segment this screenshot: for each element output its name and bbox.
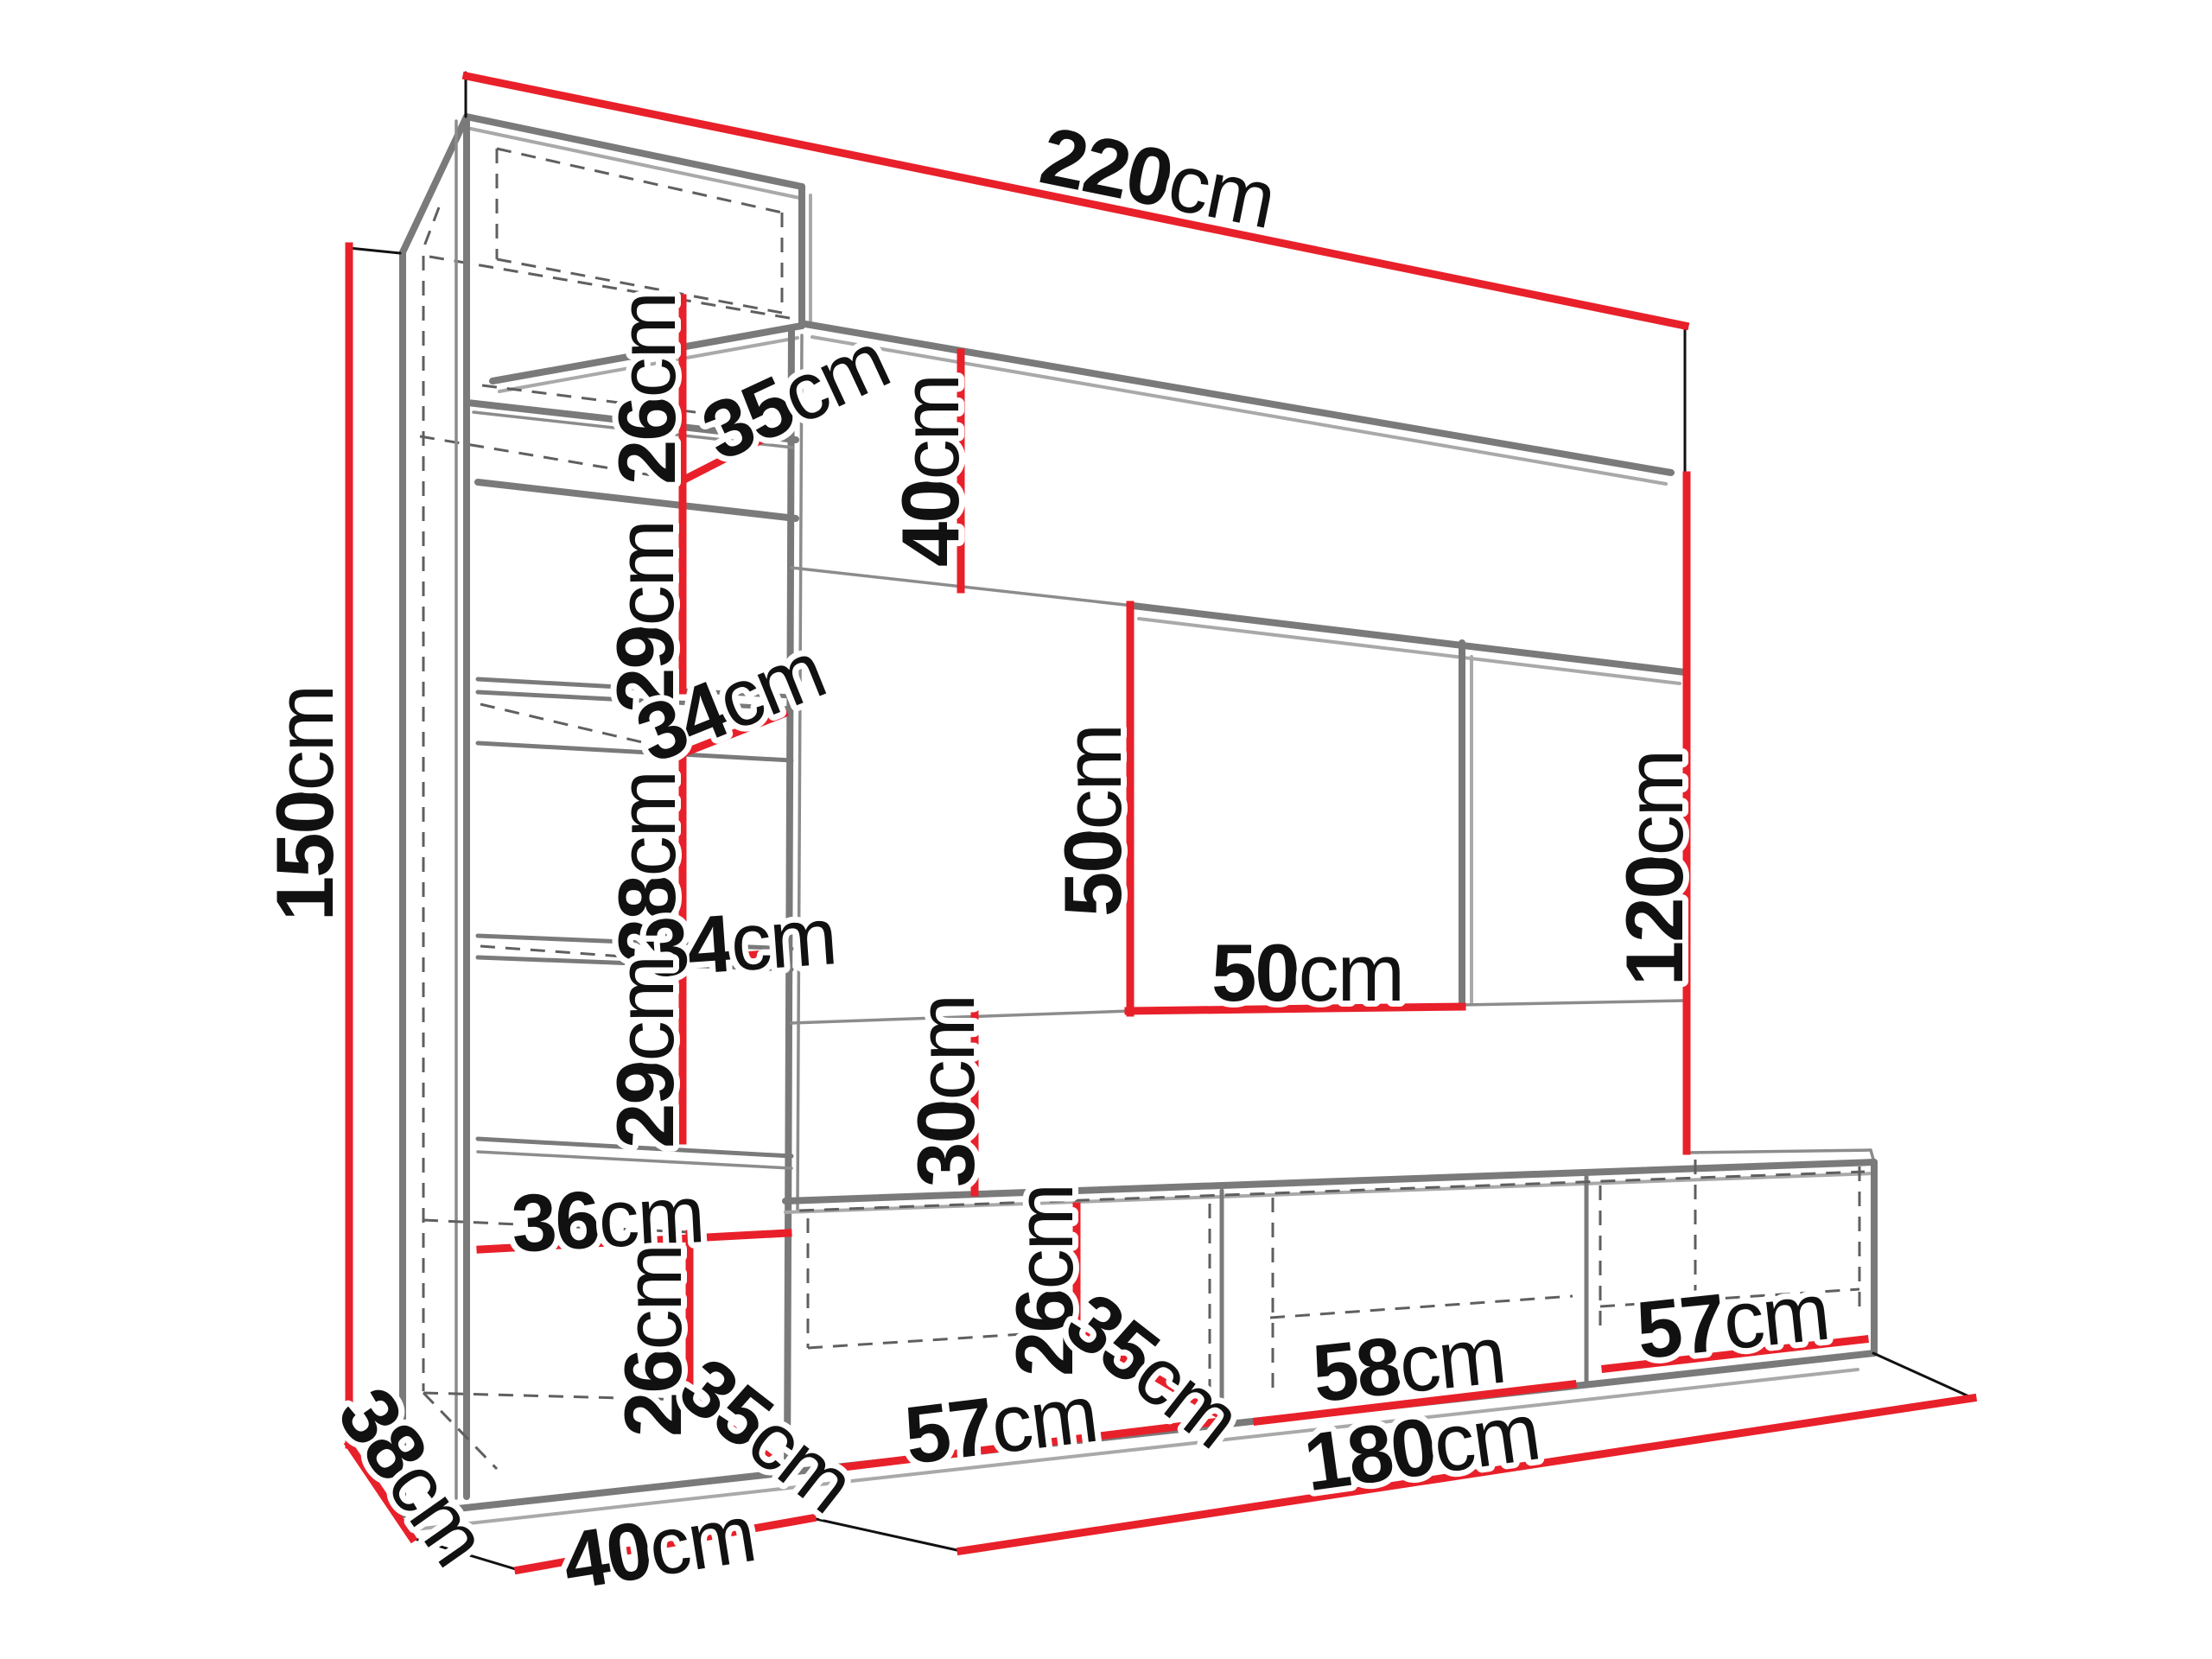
dim-label-top-cabinet-height: 26cm bbox=[601, 293, 692, 485]
svg-text:40cm: 40cm bbox=[556, 1487, 760, 1606]
dim-label-height-right: 120cm bbox=[1609, 751, 1700, 986]
page: 220cm 150cm 26cm 35cm 40cm 29cm 34cm 28c… bbox=[0, 0, 2212, 1659]
svg-text:29cm: 29cm bbox=[600, 957, 690, 1148]
svg-text:26cm: 26cm bbox=[601, 293, 692, 485]
dim-label-width-overall: 220cm bbox=[1033, 110, 1282, 245]
dimension-diagram: 220cm 150cm 26cm 35cm 40cm 29cm 34cm 28c… bbox=[0, 0, 2212, 1659]
svg-text:57cm: 57cm bbox=[900, 1368, 1102, 1481]
svg-text:50cm: 50cm bbox=[1211, 927, 1403, 1018]
svg-text:50cm: 50cm bbox=[1047, 725, 1138, 917]
dim-label-base-front-depth: 40cm bbox=[556, 1487, 760, 1606]
dim-label-niche-width: 50cm bbox=[1211, 927, 1403, 1018]
svg-text:150cm: 150cm bbox=[259, 686, 350, 921]
svg-text:40cm: 40cm bbox=[885, 375, 976, 567]
svg-text:30cm: 30cm bbox=[900, 995, 991, 1187]
dim-label-gap-above-tv-stand: 30cm bbox=[900, 995, 991, 1187]
dim-label-tv-compartment-left-width: 57cm bbox=[900, 1368, 1102, 1481]
svg-text:220cm: 220cm bbox=[1033, 110, 1282, 245]
dim-label-shelf-space-lower: 29cm bbox=[600, 957, 690, 1148]
svg-text:120cm: 120cm bbox=[1609, 751, 1700, 986]
dim-label-gap-under-top-panel: 40cm bbox=[885, 375, 976, 567]
dim-label-niche-height: 50cm bbox=[1047, 725, 1138, 917]
dim-label-height-left: 150cm bbox=[259, 686, 350, 921]
